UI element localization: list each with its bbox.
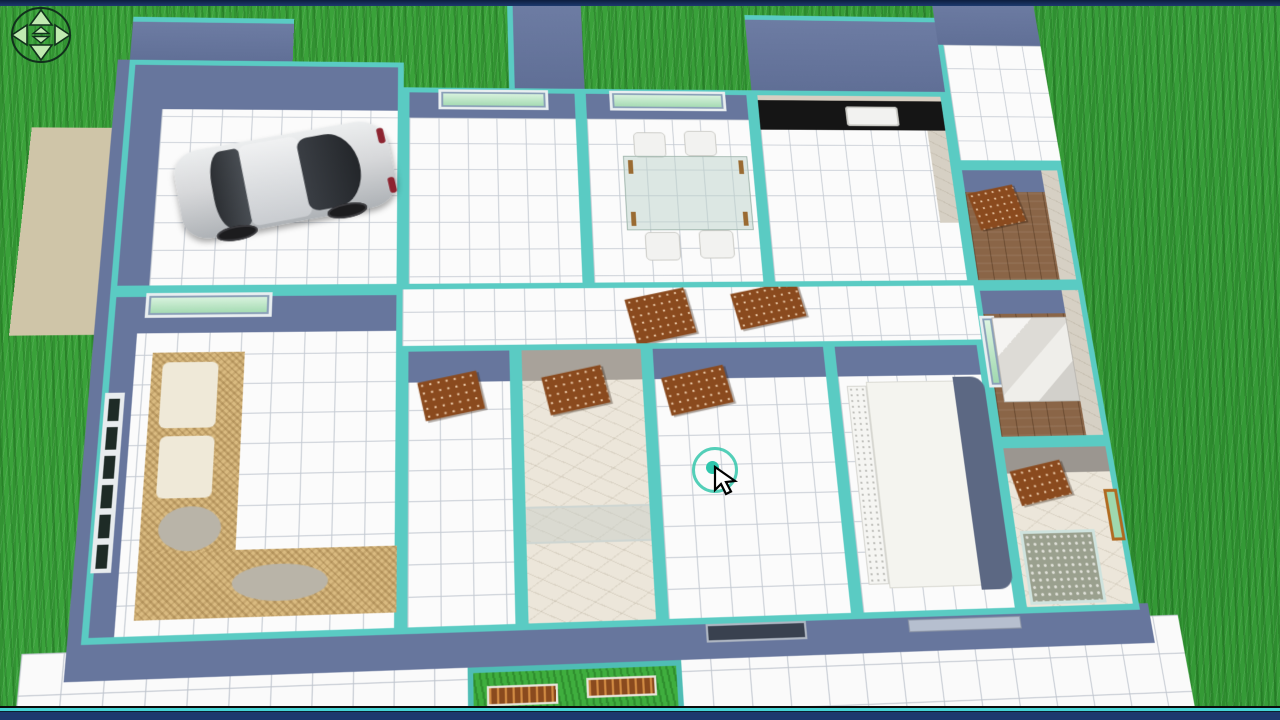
arrow-down-icon (30, 45, 52, 60)
table-leg (631, 212, 637, 226)
table-leg (628, 160, 634, 174)
car[interactable] (170, 112, 404, 251)
chevron-down-icon (33, 37, 49, 44)
wall-face (835, 345, 981, 377)
table-leg (743, 212, 749, 226)
room-bathroom-middle[interactable] (515, 343, 663, 630)
room-right-top[interactable] (956, 165, 1083, 285)
dining-chair[interactable] (645, 232, 682, 261)
room-bathroom-right[interactable] (997, 440, 1140, 613)
sofa-pillow (157, 506, 222, 552)
room-dining[interactable] (580, 89, 770, 288)
front-window-slot-light (908, 616, 1022, 633)
room-living[interactable] (81, 289, 403, 645)
dining-table[interactable] (623, 156, 754, 231)
sofa-cushion (156, 435, 215, 498)
wall-face (1041, 170, 1076, 279)
table-leg (738, 160, 744, 174)
kitchen-sink[interactable] (845, 106, 900, 126)
dining-chair[interactable] (698, 230, 735, 258)
planter-box[interactable] (586, 675, 657, 698)
wood-frame-window[interactable] (1103, 489, 1126, 541)
patio[interactable] (938, 45, 1062, 166)
arrow-up-icon (30, 10, 52, 25)
sofa-cushion (158, 362, 218, 429)
kitchen-counter[interactable] (757, 95, 945, 130)
letterbox-top-bar (0, 0, 1280, 6)
room-kitchen[interactable] (751, 90, 973, 287)
tall-wall-center (507, 0, 585, 94)
sofa-arm-horizontal[interactable] (134, 546, 397, 621)
wardrobe[interactable] (991, 317, 1080, 403)
wall-face (132, 65, 398, 111)
front-window-slot-dark (706, 621, 808, 643)
shower[interactable] (1020, 529, 1107, 605)
letterbox-bottom-bar (0, 706, 1280, 720)
window[interactable] (145, 292, 273, 318)
room-small[interactable] (401, 345, 522, 635)
dpad-icon (6, 4, 74, 66)
room-top-left[interactable] (403, 87, 589, 289)
tall-wall-patio (931, 0, 1042, 51)
tall-wall-kitchen (744, 15, 945, 96)
room-center[interactable] (646, 341, 858, 625)
dining-chair[interactable] (633, 132, 667, 157)
mouse-cursor-icon (712, 465, 740, 502)
tall-wall-garage (129, 17, 294, 67)
hallway-door[interactable] (730, 281, 806, 330)
room-garage[interactable] (110, 60, 403, 292)
dining-chair[interactable] (684, 131, 718, 156)
chevron-up-icon (33, 27, 49, 34)
sofa-pillow (231, 562, 329, 602)
glass-shower-partition[interactable] (526, 504, 652, 544)
arrow-right-icon (55, 25, 70, 45)
house-3d-model[interactable] (22, 26, 1237, 720)
app-viewport (0, 0, 1280, 720)
navigation-pad[interactable] (6, 4, 74, 71)
window[interactable] (438, 89, 548, 110)
room-right-middle[interactable] (973, 285, 1110, 443)
hallway-door[interactable] (624, 288, 696, 346)
window[interactable] (609, 91, 727, 112)
planter-box[interactable] (487, 683, 559, 706)
arrow-left-icon (12, 25, 27, 45)
